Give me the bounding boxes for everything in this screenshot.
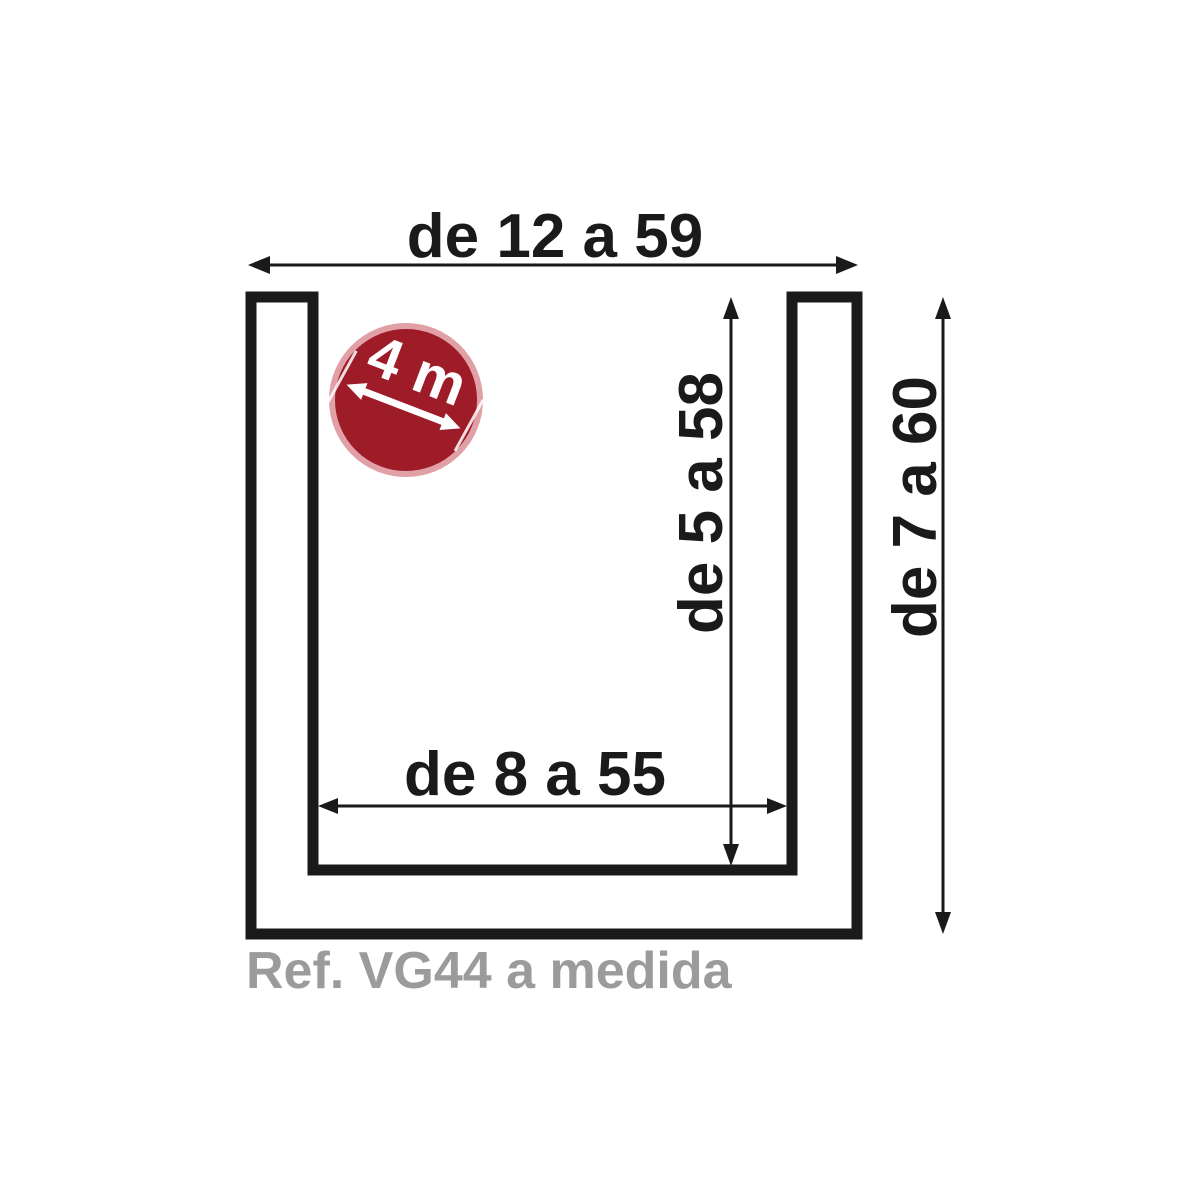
- length-badge: 4 m: [328, 314, 496, 474]
- inner-height-label: de 5 a 58: [667, 372, 736, 634]
- outer-height-label: de 7 a 60: [881, 376, 950, 638]
- reference-caption: Ref. VG44 a medida: [246, 942, 733, 1000]
- u-profile-dimension-diagram: de 12 a 59 de 8 a 55 de 5 a 58 de 7 a 60: [0, 0, 1200, 1200]
- outer-width-label: de 12 a 59: [407, 202, 703, 271]
- diagram-canvas: de 12 a 59 de 8 a 55 de 5 a 58 de 7 a 60: [0, 0, 1200, 1200]
- inner-width-label: de 8 a 55: [404, 740, 666, 809]
